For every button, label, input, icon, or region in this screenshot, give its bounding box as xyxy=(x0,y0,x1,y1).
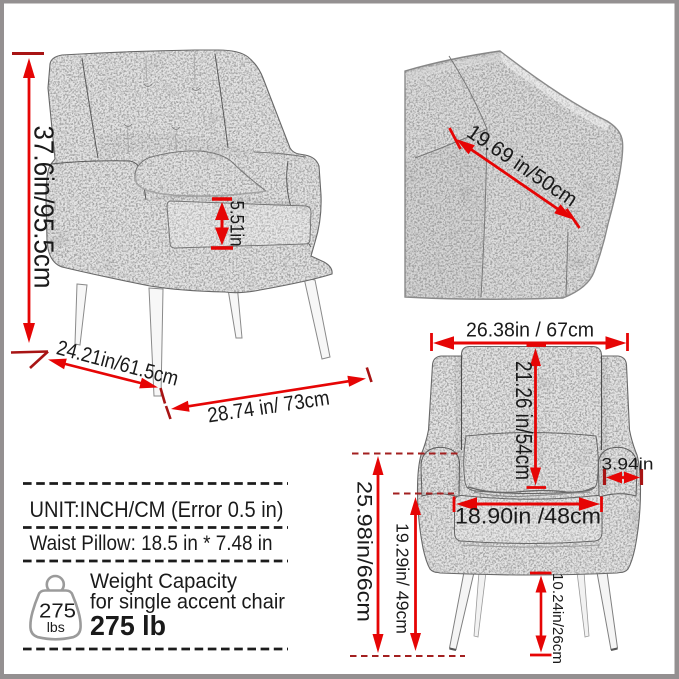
svg-text:275 lb: 275 lb xyxy=(90,610,166,641)
svg-text:26.38in / 67cm: 26.38in / 67cm xyxy=(466,320,594,342)
svg-text:10.24in/26cm: 10.24in/26cm xyxy=(549,573,566,664)
svg-text:37.6in/95.5cm: 37.6in/95.5cm xyxy=(29,126,60,289)
svg-text:5.51in: 5.51in xyxy=(226,201,247,247)
svg-text:25.98in/66cm: 25.98in/66cm xyxy=(353,481,376,622)
svg-text:Waist Pillow: 18.5 in * 7.48 i: Waist Pillow: 18.5 in * 7.48 in xyxy=(30,532,273,555)
svg-text:3.94in: 3.94in xyxy=(602,456,654,474)
svg-text:UNIT:INCH/CM (Error 0.5 in): UNIT:INCH/CM (Error 0.5 in) xyxy=(30,497,284,522)
svg-text:21.26 in/54cm: 21.26 in/54cm xyxy=(511,361,537,480)
svg-text:19.29in/ 49cm: 19.29in/ 49cm xyxy=(393,523,413,634)
svg-text:18.90in /48cm: 18.90in /48cm xyxy=(455,504,601,529)
svg-text:lbs: lbs xyxy=(47,620,65,635)
